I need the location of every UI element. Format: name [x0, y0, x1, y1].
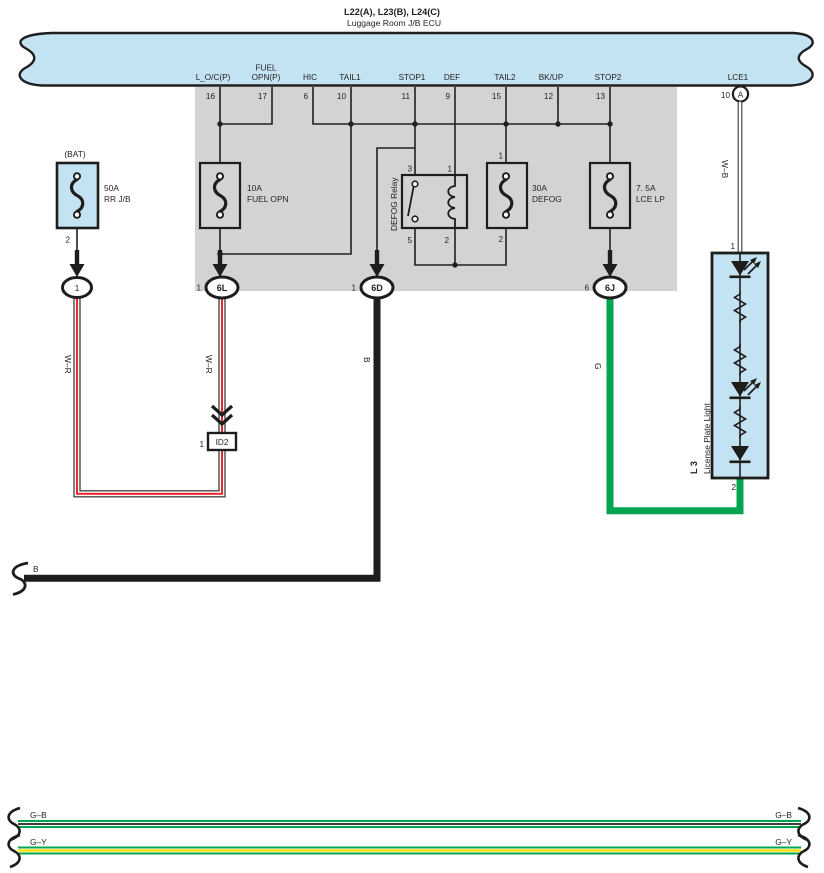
relay-contact-icon — [412, 216, 418, 222]
pin-number-13: 13 — [596, 92, 606, 101]
fuse-50a-pin2: 2 — [65, 236, 70, 245]
fuse-terminal-icon — [503, 212, 509, 218]
ecu-pin-label-bkup: BK/UP — [539, 73, 564, 82]
junction-dot — [217, 121, 222, 126]
ecu-subtitle: Luggage Room J/B ECU — [347, 18, 441, 28]
wire-wb-label: W–B — [720, 160, 730, 179]
wire-g-y: G–Y G–Y — [9, 835, 810, 867]
wire-gb-left-label: G–B — [30, 810, 47, 820]
id2-connector: ID2 1 — [199, 433, 236, 450]
pin-number-12: 12 — [544, 92, 554, 101]
pin-number-16: 16 — [206, 92, 216, 101]
ecu-pin-label-lce1: LCE1 — [728, 73, 749, 82]
fuse-50a-rating: 50A — [104, 183, 119, 193]
junction-dot — [452, 262, 457, 267]
light-pin-2: 2 — [731, 483, 736, 492]
light-pin-1: 1 — [730, 242, 735, 251]
ecu-title: L22(A), L23(B), L24(C) — [344, 7, 440, 17]
junction-dot — [503, 121, 508, 126]
junction-dot — [348, 121, 353, 126]
fuse-30a-pin1: 1 — [498, 152, 503, 161]
fuse-terminal-icon — [607, 212, 613, 218]
ecu-band: L22(A), L23(B), L24(C) Luggage Room J/B … — [20, 7, 813, 86]
connector-6j-code: 6J — [605, 283, 615, 293]
pin-number-9: 9 — [445, 92, 450, 101]
relay-pin-2: 2 — [444, 236, 449, 245]
connector-6l-code: 6L — [217, 283, 228, 293]
ecu-pin-label-tail2: TAIL2 — [494, 73, 516, 82]
pin-number-17: 17 — [258, 92, 268, 101]
relay-contact-icon — [412, 181, 418, 187]
fuse-50a-name: RR J/B — [104, 194, 131, 204]
light-name: License Plate Light — [702, 403, 712, 474]
connector-6l-pin: 1 — [196, 284, 201, 293]
fuse-terminal-icon — [74, 212, 80, 218]
fuse-30a-name: DEFOG — [532, 194, 562, 204]
fuse-75a-rating: 7. 5A — [636, 183, 656, 193]
pin-number-6: 6 — [303, 92, 308, 101]
fuse-terminal-icon — [217, 212, 223, 218]
junction-dot — [607, 121, 612, 126]
fuse-75a-name: LCE LP — [636, 194, 665, 204]
license-plate-light: 1 2 L 3 — [689, 242, 768, 492]
relay-pin-1: 1 — [447, 165, 452, 174]
fuse-50a-rr-jb: (BAT) 50A RR J/B 2 — [57, 149, 131, 245]
fuse-30a-pin2: 2 — [498, 235, 503, 244]
connector-a-code: A — [738, 90, 744, 99]
pin-number-11: 11 — [402, 92, 411, 101]
fuse-30a-rating: 30A — [532, 183, 547, 193]
pin-number-10: 10 — [337, 92, 347, 101]
ecu-pin-numbers: 16 17 6 10 11 9 15 12 13 — [206, 92, 606, 101]
ecu-pin-label-def: DEF — [444, 73, 460, 82]
wiring-diagram: L22(A), L23(B), L24(C) Luggage Room J/B … — [0, 0, 824, 873]
connector-6d-pin: 1 — [351, 284, 356, 293]
fuse-terminal-icon — [74, 173, 80, 179]
light-code: L 3 — [689, 461, 699, 474]
arrow-connector-icon — [70, 250, 85, 277]
ecu-pin-label-hic: HIC — [303, 73, 317, 82]
ecu-pin-label-stop1: STOP1 — [399, 73, 426, 82]
defog-relay-name: DEFOG Relay — [389, 177, 399, 231]
ecu-pin-label-fuel-bottom: OPN(P) — [252, 73, 281, 82]
relay-pin-5: 5 — [407, 236, 412, 245]
fuse-10a-rating: 10A — [247, 183, 262, 193]
ecu-pin-label-loc: L_O/C(P) — [196, 73, 231, 82]
id2-code: ID2 — [216, 438, 229, 447]
ecu-pin-label-stop2: STOP2 — [595, 73, 622, 82]
connector-a: 10 A — [721, 86, 748, 101]
wire-b-horizontal-label: B — [33, 564, 39, 574]
wire-gy-right-label: G–Y — [775, 837, 792, 847]
bat-label: (BAT) — [64, 149, 85, 159]
ecu-pin-label-tail1: TAIL1 — [339, 73, 361, 82]
pin-number-15: 15 — [492, 92, 502, 101]
connector-1: 1 — [63, 278, 92, 298]
junction-dot — [412, 121, 417, 126]
wire-g-label: G — [593, 363, 603, 370]
wire-w-r-left — [77, 297, 222, 494]
wire-gb-right-label: G–B — [775, 810, 792, 820]
wire-g-b: G–B G–B — [9, 808, 810, 840]
id2-pin: 1 — [199, 440, 204, 449]
relay-pin-3: 3 — [407, 165, 412, 174]
wire-wr-right-label: W–R — [204, 355, 214, 374]
junction-dot — [555, 121, 560, 126]
wiring-diagram-page: L22(A), L23(B), L24(C) Luggage Room J/B … — [0, 0, 824, 873]
pin-number-lce1: 10 — [721, 91, 731, 100]
connector-1-code: 1 — [75, 284, 80, 293]
fuse-10a-name: FUEL OPN — [247, 194, 289, 204]
fuse-terminal-icon — [607, 173, 613, 179]
ecu-pin-label-fuel-top: FUEL — [256, 64, 277, 73]
fuse-terminal-icon — [217, 173, 223, 179]
connector-6j-pin: 6 — [584, 284, 589, 293]
wire-b-vertical-label: B — [362, 357, 372, 363]
fuse-terminal-icon — [503, 173, 509, 179]
wire-gy-left-label: G–Y — [30, 837, 47, 847]
connector-6d-code: 6D — [371, 283, 383, 293]
wire-wr-left-label: W–R — [63, 355, 73, 374]
